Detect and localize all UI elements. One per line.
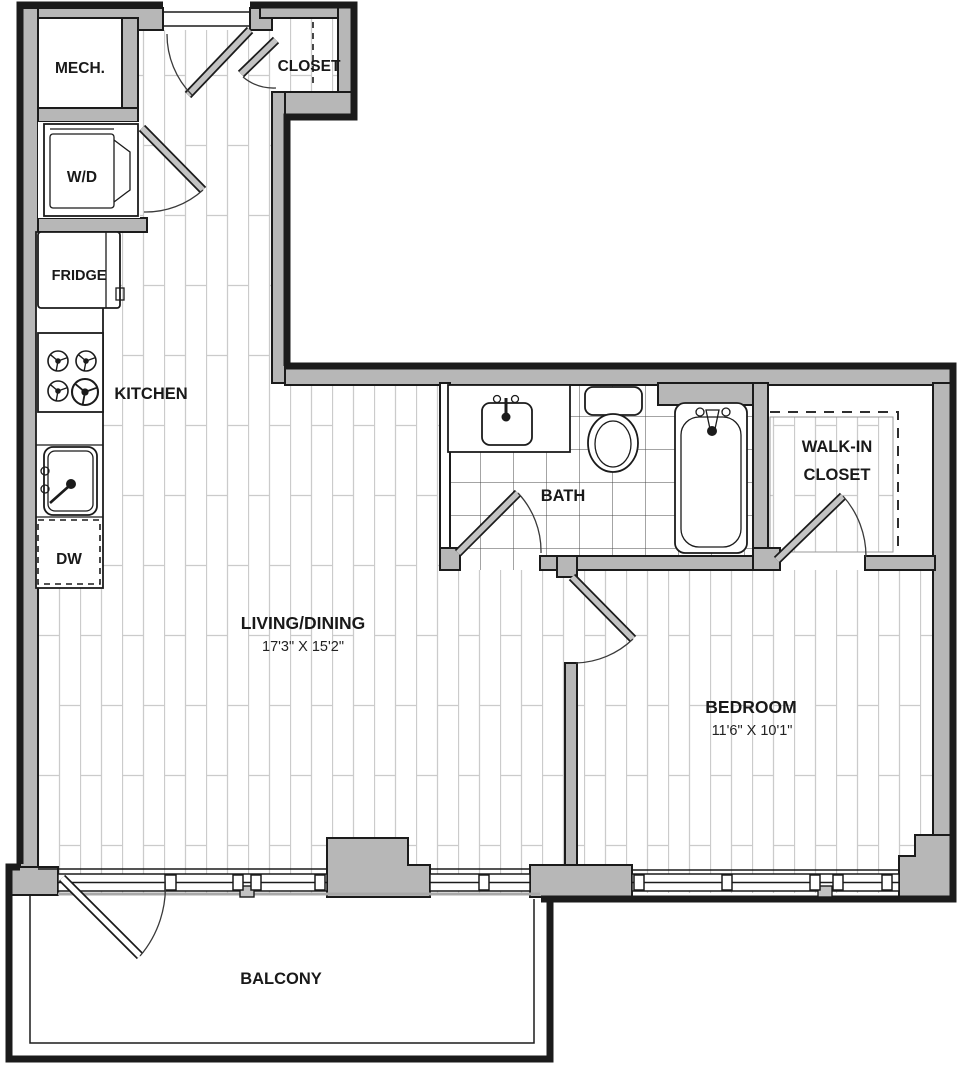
stove-burner (72, 379, 98, 405)
window-living-2 (430, 874, 530, 891)
kitchen-sink (41, 447, 97, 515)
corner-block-balcony (8, 867, 58, 895)
floor-entry-closet (283, 18, 338, 92)
label-walkin-line2: CLOSET (804, 466, 871, 484)
wall-bedroom-west (565, 663, 577, 880)
floors (38, 18, 933, 893)
label-bedroom-dims: 11'6" X 10'1" (712, 723, 793, 739)
stove-burner (48, 351, 68, 371)
bathtub (675, 403, 747, 553)
wall-bedroom-door-stub (557, 556, 577, 577)
toilet (585, 387, 642, 472)
label-bedroom: BEDROOM (705, 697, 796, 717)
stove-burner (76, 351, 96, 371)
wall-walkin-south (865, 556, 935, 570)
bath-sink (482, 396, 532, 446)
wall-tub-niche (658, 383, 755, 405)
wall-east (933, 383, 951, 897)
label-living-dims: 17'3" X 15'2" (262, 639, 344, 655)
wall-wd-south (38, 218, 147, 232)
pier-living-bedroom (530, 865, 632, 897)
label-bath: BATH (541, 487, 586, 505)
wall-mech-east (122, 18, 138, 122)
wall-walkin-door-jamb (753, 548, 780, 570)
label-balcony: BALCONY (240, 970, 322, 988)
wall-mech-south (38, 108, 138, 122)
stove (38, 333, 103, 412)
label-entry-closet: CLOSET (278, 58, 341, 75)
floor-plan-page: MECH. W/D FRIDGE KITCHEN DW CLOSET BATH … (0, 0, 958, 1068)
label-mech: MECH. (55, 60, 105, 77)
label-dw: DW (56, 551, 82, 568)
wall-north (285, 368, 951, 385)
floor-plan: MECH. W/D FRIDGE KITCHEN DW CLOSET BATH … (0, 0, 958, 1068)
label-kitchen: KITCHEN (114, 385, 187, 403)
label-wd: W/D (67, 169, 97, 186)
outline-balcony (9, 867, 550, 1059)
wall-bath-walkin-divider (753, 383, 768, 570)
label-living: LIVING/DINING (241, 613, 365, 633)
window-bedroom (632, 874, 899, 897)
stove-burner (48, 381, 68, 401)
wall-corridor-east (272, 92, 285, 383)
label-walkin-line1: WALK-IN (802, 438, 873, 456)
label-fridge: FRIDGE (52, 268, 107, 284)
